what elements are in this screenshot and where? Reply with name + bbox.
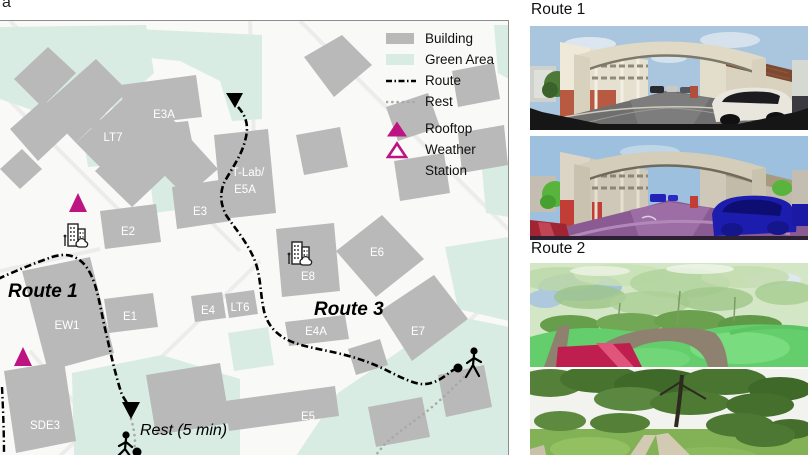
building-label-e2: E2 <box>121 226 135 238</box>
building-label-e6: E6 <box>370 247 384 259</box>
route2-park-panorama-segmentation <box>530 263 808 367</box>
route-3-label: Route 3 <box>314 299 384 320</box>
building-label-e4a: E4A <box>305 326 327 338</box>
route1-street-panorama-photo <box>530 26 808 130</box>
legend-station-label-2: Weather <box>425 142 476 157</box>
legend-station-label-1: Rooftop <box>425 121 472 136</box>
route-3-end-dot <box>454 364 463 373</box>
rooftop-station-icon <box>69 193 87 212</box>
building-facade-icon <box>64 224 88 247</box>
legend-row-building: Building <box>386 28 506 49</box>
legend-row-weather: Weather <box>386 139 506 160</box>
campus-map-panel: E3A LT7 T-Lab/ E5A E3 E2 E1 E4 LT6 E4A E… <box>0 20 509 455</box>
building-label-lt7: LT7 <box>104 132 123 144</box>
route-fragment-path <box>2 387 4 455</box>
rooftop-station-icon <box>14 347 32 366</box>
building-label-e3: E3 <box>193 206 207 218</box>
figure-panel-label: a <box>2 0 11 12</box>
rooftop-filled-triangle-icon <box>386 120 410 138</box>
legend-row-route: Route <box>386 70 506 91</box>
building-label-e8: E8 <box>301 271 315 283</box>
legend-station-label-3: Station <box>425 163 467 178</box>
building-label-lt6: LT6 <box>231 302 250 314</box>
route-line-sample <box>386 77 416 85</box>
building-label-e5a: E5A <box>234 184 256 196</box>
figure: a <box>0 0 808 455</box>
legend-row-rest: Rest <box>386 91 506 112</box>
rest-line-sample <box>386 98 416 106</box>
legend-green-area-label: Green Area <box>425 52 494 67</box>
building-label-sde3: SDE3 <box>30 420 60 432</box>
legend-row-green-area: Green Area <box>386 49 506 70</box>
route2-park-panorama-photo <box>530 369 808 455</box>
building-label-e7: E7 <box>411 326 425 338</box>
building-label-tlab: T-Lab/ <box>232 167 265 179</box>
legend-row-rooftop: Rooftop <box>386 118 506 139</box>
green-area-swatch <box>386 54 414 65</box>
map-legend: Building Green Area Route Rest Rooftop W… <box>386 28 506 181</box>
legend-rest-label: Rest <box>425 94 453 109</box>
building-label-ew1: EW1 <box>55 320 80 332</box>
route-1-label: Route 1 <box>8 281 78 302</box>
building-label-e3a: E3A <box>153 109 175 121</box>
building-label-e5: E5 <box>301 411 315 423</box>
rooftop-open-triangle-icon <box>386 141 410 159</box>
building-swatch <box>386 33 414 44</box>
building-label-e1: E1 <box>123 311 137 323</box>
legend-row-station: Station <box>386 160 506 181</box>
route1-street-panorama-segmentation <box>530 136 808 240</box>
route-1-panel-title: Route 1 <box>531 1 585 19</box>
legend-route-label: Route <box>425 73 461 88</box>
route-2-panel-title: Route 2 <box>531 240 585 258</box>
building-label-e4: E4 <box>201 305 216 317</box>
legend-building-label: Building <box>425 31 473 46</box>
rest-annotation: Rest (5 min) <box>140 422 227 439</box>
